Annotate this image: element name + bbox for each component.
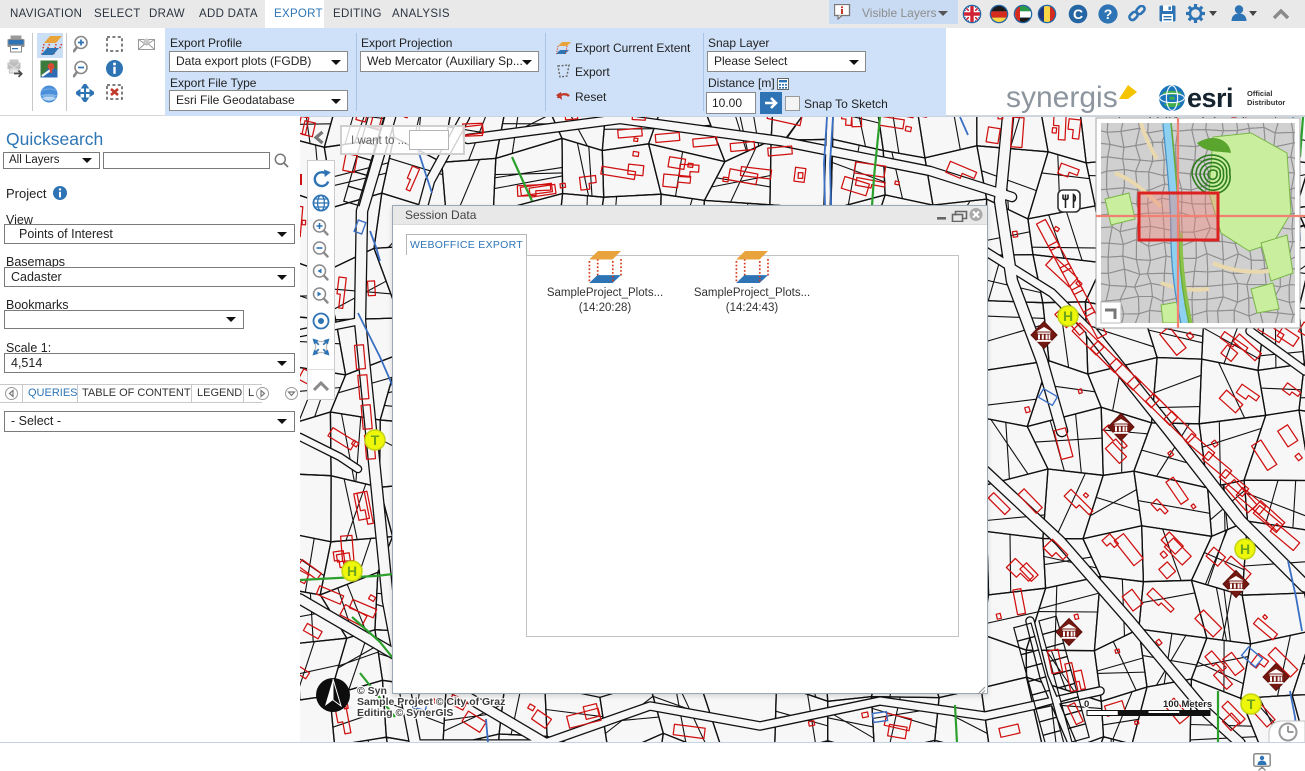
svg-text:T: T: [1247, 696, 1256, 712]
svg-text:0: 0: [1084, 699, 1089, 710]
svg-text:H: H: [1240, 541, 1250, 557]
svg-text:100 Meters: 100 Meters: [1163, 699, 1212, 710]
svg-text:C: C: [1073, 6, 1083, 22]
svg-text:H: H: [347, 563, 357, 579]
svg-text:T: T: [371, 432, 380, 448]
svg-text:synergis: synergis: [1006, 83, 1118, 113]
svg-text:H: H: [1063, 308, 1073, 324]
svg-text:Editing © SynerGIS: Editing © SynerGIS: [357, 707, 453, 719]
svg-text:?: ?: [1104, 6, 1113, 22]
